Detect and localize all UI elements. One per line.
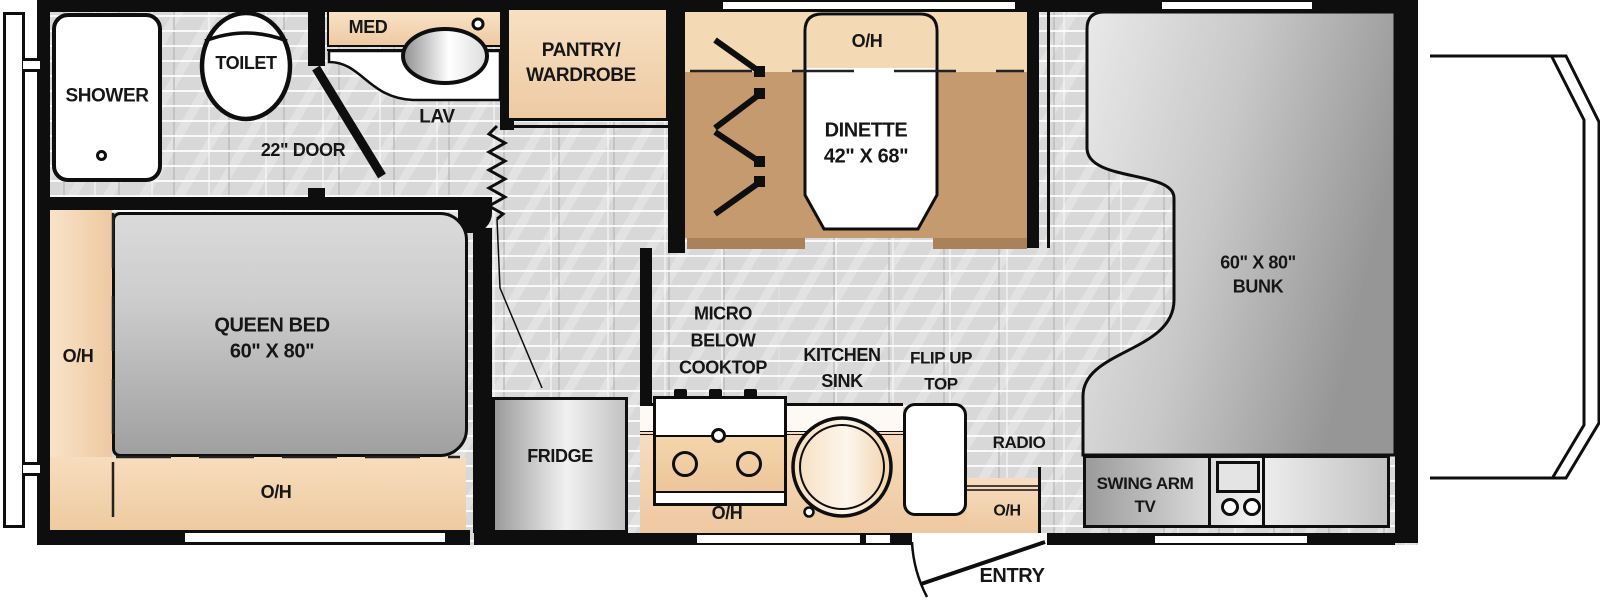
fridge-label: FRIDGE bbox=[527, 445, 593, 469]
entry-door-arc bbox=[912, 542, 927, 597]
swing-arm-tv-label: SWING ARM TV bbox=[1097, 473, 1194, 519]
flip-up-top-counter bbox=[903, 403, 967, 516]
wall-bed-kitchen bbox=[473, 228, 492, 533]
tv-screen bbox=[1216, 461, 1260, 493]
micro-cooktop-label: MICRO BELOW COOKTOP bbox=[679, 301, 767, 382]
wall-dinette-right-thin bbox=[1047, 0, 1050, 248]
dinette-label: DINETTE 42" X 68" bbox=[824, 118, 908, 171]
cab-windshield-line bbox=[1552, 57, 1584, 477]
cooktop-oh-label: O/H bbox=[712, 502, 743, 526]
window-top-dinette bbox=[723, 2, 1015, 9]
lav-label: LAV bbox=[419, 104, 454, 129]
window-bed-slide bbox=[185, 533, 445, 542]
bedroom-oh-bottom-label: O/H bbox=[261, 481, 292, 505]
rear-slide-rail bbox=[3, 12, 25, 528]
cooktop-pilot bbox=[711, 428, 726, 443]
dinette-bench-front-right bbox=[933, 238, 1027, 249]
toilet-label: TOILET bbox=[215, 52, 276, 76]
bedroom-overhead-bottom bbox=[50, 457, 466, 532]
wall-radio-stub bbox=[1038, 467, 1041, 533]
bunk-label: 60" X 80" BUNK bbox=[1220, 251, 1296, 299]
bath-door-label: 22" DOOR bbox=[261, 139, 345, 163]
shower-label: SHOWER bbox=[65, 83, 148, 108]
cooktop-burner-panel bbox=[656, 437, 784, 493]
med-label: MED bbox=[349, 16, 388, 40]
cab-body-outline bbox=[1430, 56, 1599, 478]
tv-cabinet-divider-2 bbox=[1262, 458, 1265, 525]
window-bottom-radio bbox=[866, 535, 890, 543]
radio-label: RADIO bbox=[993, 432, 1046, 454]
window-bottom-tv bbox=[1155, 536, 1307, 543]
rv-floorplan: SHOWER TOILET MED LAV 22" DOOR PANTRY/ W… bbox=[0, 0, 1600, 604]
dinette-oh-label: O/H bbox=[852, 30, 883, 54]
tv-cabinet-divider-1 bbox=[1208, 458, 1211, 525]
burner-left bbox=[672, 451, 698, 477]
dinette-bench-front-left bbox=[687, 238, 805, 249]
med-cabinet-track1 bbox=[327, 45, 500, 47]
cooktop-unit bbox=[653, 396, 787, 506]
pantry-door-track bbox=[507, 125, 668, 128]
wall-bath-bedroom bbox=[37, 197, 465, 210]
tv-speaker-right bbox=[1243, 498, 1261, 516]
wall-kitchen-half bbox=[640, 248, 652, 403]
bedroom-oh-left-label: O/H bbox=[63, 345, 94, 369]
wall-rear-left bbox=[37, 0, 50, 533]
window-bottom-kitchen bbox=[697, 535, 860, 543]
kitchen-sink-label: KITCHEN SINK bbox=[803, 342, 880, 394]
pantry-label: PANTRY/ WARDROBE bbox=[526, 38, 636, 88]
burner-right bbox=[736, 451, 762, 477]
wall-pantry-right bbox=[668, 0, 685, 253]
wall-bath-right bbox=[308, 0, 325, 66]
entry-label: ENTRY bbox=[979, 563, 1044, 589]
shower-drain bbox=[96, 150, 107, 161]
entry-door-opening bbox=[912, 533, 1047, 545]
rear-rail-bracket-bottom bbox=[23, 462, 40, 476]
med-cabinet-track2 bbox=[327, 49, 500, 51]
wall-bath-stub bbox=[308, 188, 325, 197]
tv-speaker-left bbox=[1221, 498, 1239, 516]
window-top-bunk bbox=[1162, 2, 1312, 9]
wall-dinette-right bbox=[1027, 0, 1039, 248]
queen-bed-label: QUEEN BED 60" X 80" bbox=[214, 313, 329, 366]
wall-front-right bbox=[1395, 12, 1418, 543]
radio-oh-label: O/H bbox=[993, 500, 1020, 521]
flip-up-top-label: FLIP UP TOP bbox=[910, 346, 972, 397]
rear-rail-bracket-top bbox=[23, 58, 40, 72]
